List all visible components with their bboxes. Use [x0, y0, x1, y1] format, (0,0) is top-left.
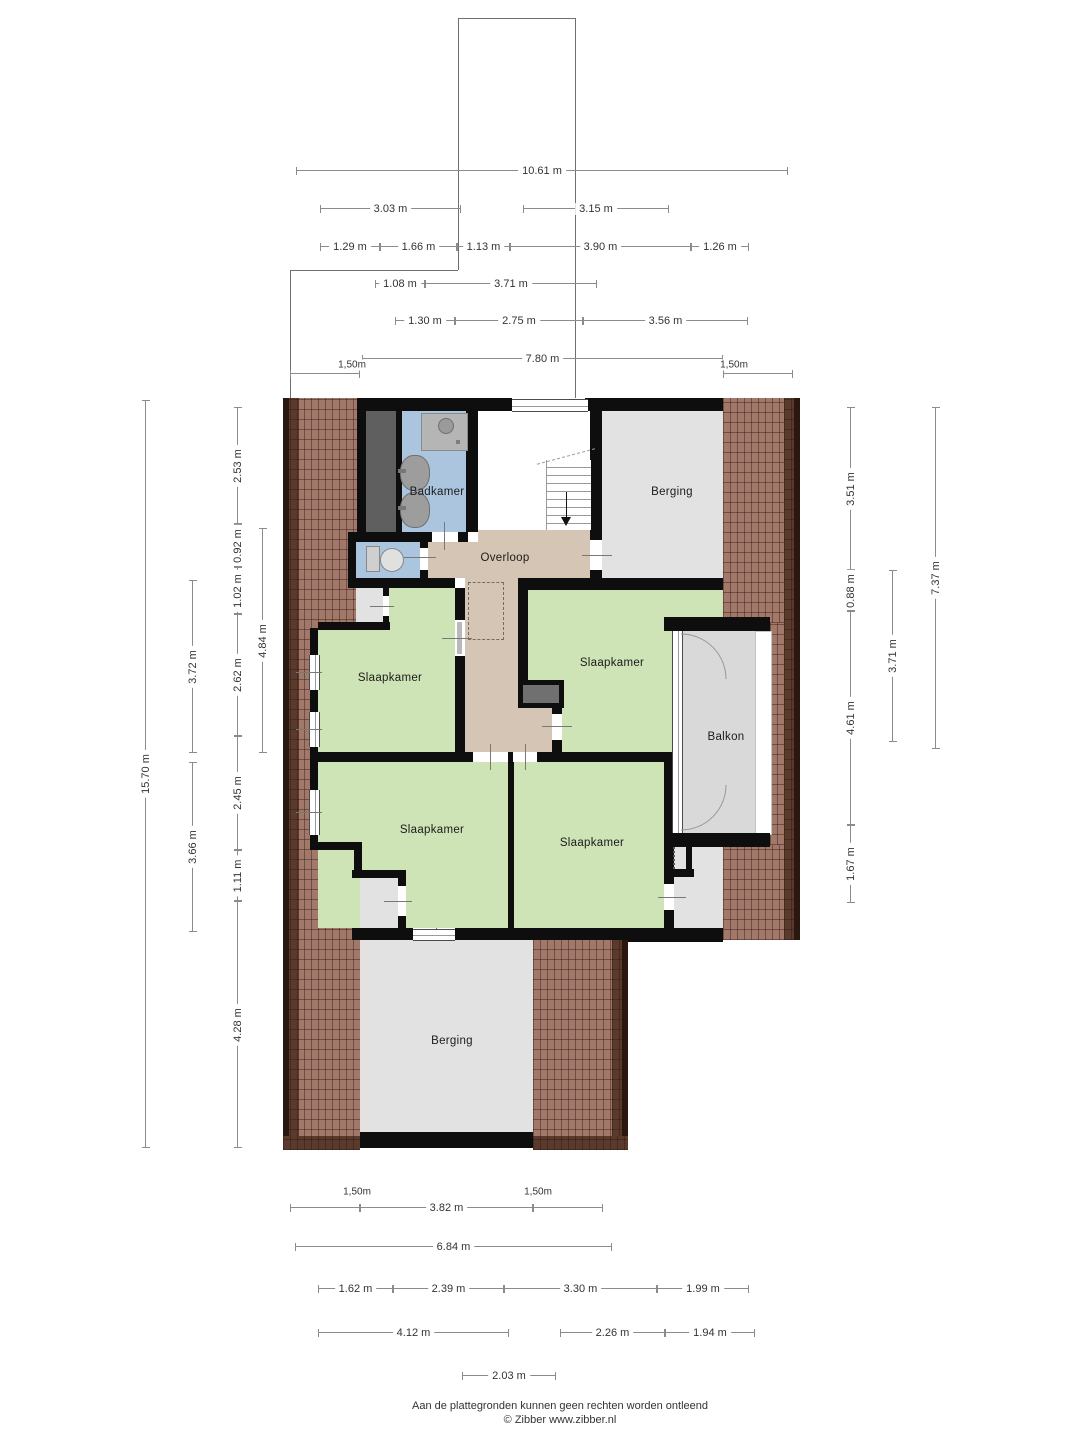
- dim-top: 7.80 m: [362, 358, 723, 359]
- dim-top: 1.26 m: [691, 246, 749, 247]
- projection-line: [458, 18, 459, 270]
- opening-tick: [404, 557, 436, 558]
- wall-segment: [310, 762, 318, 790]
- wall-segment: [398, 878, 406, 886]
- room-label-slaapkamer-br: Slaapkamer: [560, 837, 624, 849]
- room-label-slaapkamer-bl: Slaapkamer: [400, 824, 464, 836]
- dim-top: 2.75 m: [455, 320, 583, 321]
- dim-right-total: 7.37 m: [935, 407, 936, 749]
- wall-segment: [455, 588, 465, 620]
- dim-left: 1.11 m: [237, 850, 238, 901]
- wall-segment: [508, 762, 514, 928]
- dim-top-overall: 10.61 m: [296, 170, 788, 171]
- opening-tick: [444, 522, 445, 550]
- dim-bottom: 2.26 m: [560, 1332, 665, 1333]
- dim-top: 1.30 m: [395, 320, 455, 321]
- wall-segment: [352, 870, 406, 878]
- footer-disclaimer: Aan de plattegronden kunnen geen rechten…: [40, 1399, 1080, 1413]
- opening-tick: [582, 555, 612, 556]
- roof-edge-bottom-l: [283, 1136, 360, 1150]
- dim-top: 3.90 m: [510, 246, 691, 247]
- wall-segment: [664, 910, 674, 928]
- opening-tick: [370, 606, 394, 607]
- dim-bottom: 1.99 m: [657, 1288, 749, 1289]
- roof-edge-right: [784, 398, 800, 940]
- room-label-slaapkamer-tr: Slaapkamer: [580, 657, 644, 669]
- dim-left: 3.72 m: [192, 580, 193, 753]
- wall-segment: [352, 928, 413, 940]
- dim-left: 3.66 m: [192, 762, 193, 932]
- dim-bottom: 3.82 m: [360, 1207, 533, 1208]
- dim-left: 4.84 m: [262, 528, 263, 753]
- wall-segment: [628, 928, 723, 942]
- projection-line: [458, 18, 575, 19]
- dim-top: 1.13 m: [457, 246, 510, 247]
- roof-edge-bottom-r: [533, 1136, 628, 1150]
- wall-segment: [310, 752, 473, 762]
- roof-edge-bottom-right: [612, 940, 628, 1150]
- dim-left: 2.45 m: [237, 736, 238, 850]
- room-overloop: [420, 542, 478, 578]
- dim-bottom: 1.62 m: [318, 1288, 393, 1289]
- dim-label-eave: 1,50m: [336, 360, 368, 371]
- dim-right: 3.51 m: [850, 407, 851, 570]
- opening-tick: [296, 729, 322, 730]
- dim-eave-left: [290, 1207, 360, 1208]
- wall-segment: [686, 847, 692, 871]
- dim-left-total: 15.70 m: [145, 400, 146, 1148]
- window-stairwell: [512, 399, 588, 412]
- door-swing-arc: [681, 633, 727, 679]
- wall-segment: [389, 578, 455, 588]
- dim-top: 3.15 m: [523, 208, 669, 209]
- dim-left: 4.28 m: [237, 901, 238, 1148]
- wall-segment: [537, 752, 672, 762]
- stair-arrow-stem: [566, 492, 567, 518]
- roof-edge-left: [283, 398, 299, 1150]
- dim-eave-right: [533, 1207, 603, 1208]
- wall-segment: [458, 532, 468, 542]
- wall-segment: [318, 622, 390, 630]
- wall-segment: [518, 578, 723, 590]
- dim-label-eave: 1,50m: [522, 1187, 554, 1198]
- toilet-bowl-icon: [380, 548, 404, 572]
- wall-segment: [670, 869, 694, 877]
- wall-segment: [455, 928, 628, 940]
- door-badkamer: [432, 532, 458, 542]
- door-slaapkamer-tr: [552, 714, 562, 740]
- dim-top: 3.03 m: [320, 208, 461, 209]
- balkon-edge-strip: [755, 631, 772, 835]
- opening-tick: [296, 812, 322, 813]
- wall-segment: [348, 532, 432, 542]
- wall-balcony-bottom: [664, 833, 770, 847]
- dim-left: 2.53 m: [237, 407, 238, 524]
- shower-drain-icon: [456, 440, 460, 444]
- dim-top: 3.71 m: [425, 283, 597, 284]
- wall-segment: [383, 588, 389, 596]
- dim-bottom: 4.12 m: [318, 1332, 509, 1333]
- wall-segment: [552, 740, 562, 752]
- dim-left: 1.02 m: [237, 567, 238, 614]
- dim-top: 1.08 m: [375, 283, 425, 284]
- floorplan-canvas: Badkamer Overloop Berging Slaapkamer Sla…: [0, 0, 1080, 1440]
- dim-right: 1.67 m: [850, 825, 851, 903]
- faucet-icon: [398, 469, 406, 473]
- room-slaapkamer-tl: [389, 588, 455, 628]
- dim-right: 0.88 m: [850, 570, 851, 611]
- dim-right: 4.61 m: [850, 611, 851, 825]
- wall-segment: [518, 588, 528, 682]
- opening-tick: [542, 726, 572, 727]
- door-wc: [420, 548, 428, 570]
- dim-top: 1.29 m: [320, 246, 380, 247]
- closet-bl: [360, 878, 398, 928]
- dim-right: 3.71 m: [892, 570, 893, 742]
- closet-tl: [356, 588, 383, 622]
- opening-tick: [384, 901, 412, 902]
- room-slaapkamer-tl: [318, 628, 455, 752]
- opening-tick: [296, 672, 322, 673]
- room-label-berging-bottom: Berging: [431, 1035, 473, 1047]
- room-label-badkamer: Badkamer: [410, 486, 465, 498]
- wall-segment: [585, 398, 723, 411]
- shower-head-icon: [438, 418, 454, 434]
- footer-credit: © Zibber www.zibber.nl: [40, 1413, 1080, 1427]
- dim-eave-left: [290, 373, 360, 374]
- dim-top: 1.66 m: [380, 246, 457, 247]
- projection-line: [290, 270, 458, 271]
- wall-segment: [357, 411, 366, 532]
- dim-bottom: 1.94 m: [665, 1332, 755, 1333]
- wall-segment: [310, 842, 362, 850]
- opening-tick: [658, 897, 686, 898]
- dotted-boundary: [673, 847, 675, 869]
- wall-segment: [357, 398, 512, 411]
- wall-segment: [360, 1132, 533, 1148]
- dim-eave-right: [723, 373, 793, 374]
- dim-label-eave: 1,50m: [718, 360, 750, 371]
- vide-dashed-outline: [468, 582, 504, 640]
- dim-top: 3.56 m: [583, 320, 748, 321]
- dim-bottom: 6.84 m: [295, 1246, 612, 1247]
- room-label-slaapkamer-tl: Slaapkamer: [358, 672, 422, 684]
- dim-label-eave: 1,50m: [341, 1187, 373, 1198]
- opening-tick: [490, 744, 491, 770]
- storage-nook-br: [672, 847, 723, 928]
- dim-bottom: 3.30 m: [504, 1288, 657, 1289]
- dim-left: 2.62 m: [237, 614, 238, 736]
- projection-line: [290, 270, 291, 398]
- wall-segment: [420, 570, 428, 578]
- dim-bottom: 2.03 m: [462, 1375, 556, 1376]
- door-swing-arc: [681, 785, 727, 831]
- dim-left: 0.92 m: [237, 524, 238, 567]
- wall-segment: [590, 570, 602, 578]
- window-berging: [413, 929, 455, 941]
- wall-segment: [455, 656, 465, 752]
- toilet-tank-icon: [366, 546, 380, 572]
- room-label-balkon: Balkon: [708, 731, 745, 743]
- faucet-icon: [398, 506, 406, 510]
- stair-arrow-icon: [561, 517, 571, 526]
- dim-bottom: 2.39 m: [393, 1288, 504, 1289]
- room-label-overloop: Overloop: [480, 552, 529, 564]
- void-space: [366, 411, 396, 532]
- room-label-berging-top: Berging: [651, 486, 693, 498]
- shaft-box: [518, 680, 564, 708]
- opening-tick: [525, 744, 526, 770]
- wall-segment: [590, 411, 602, 540]
- wall-balcony-top: [664, 617, 770, 631]
